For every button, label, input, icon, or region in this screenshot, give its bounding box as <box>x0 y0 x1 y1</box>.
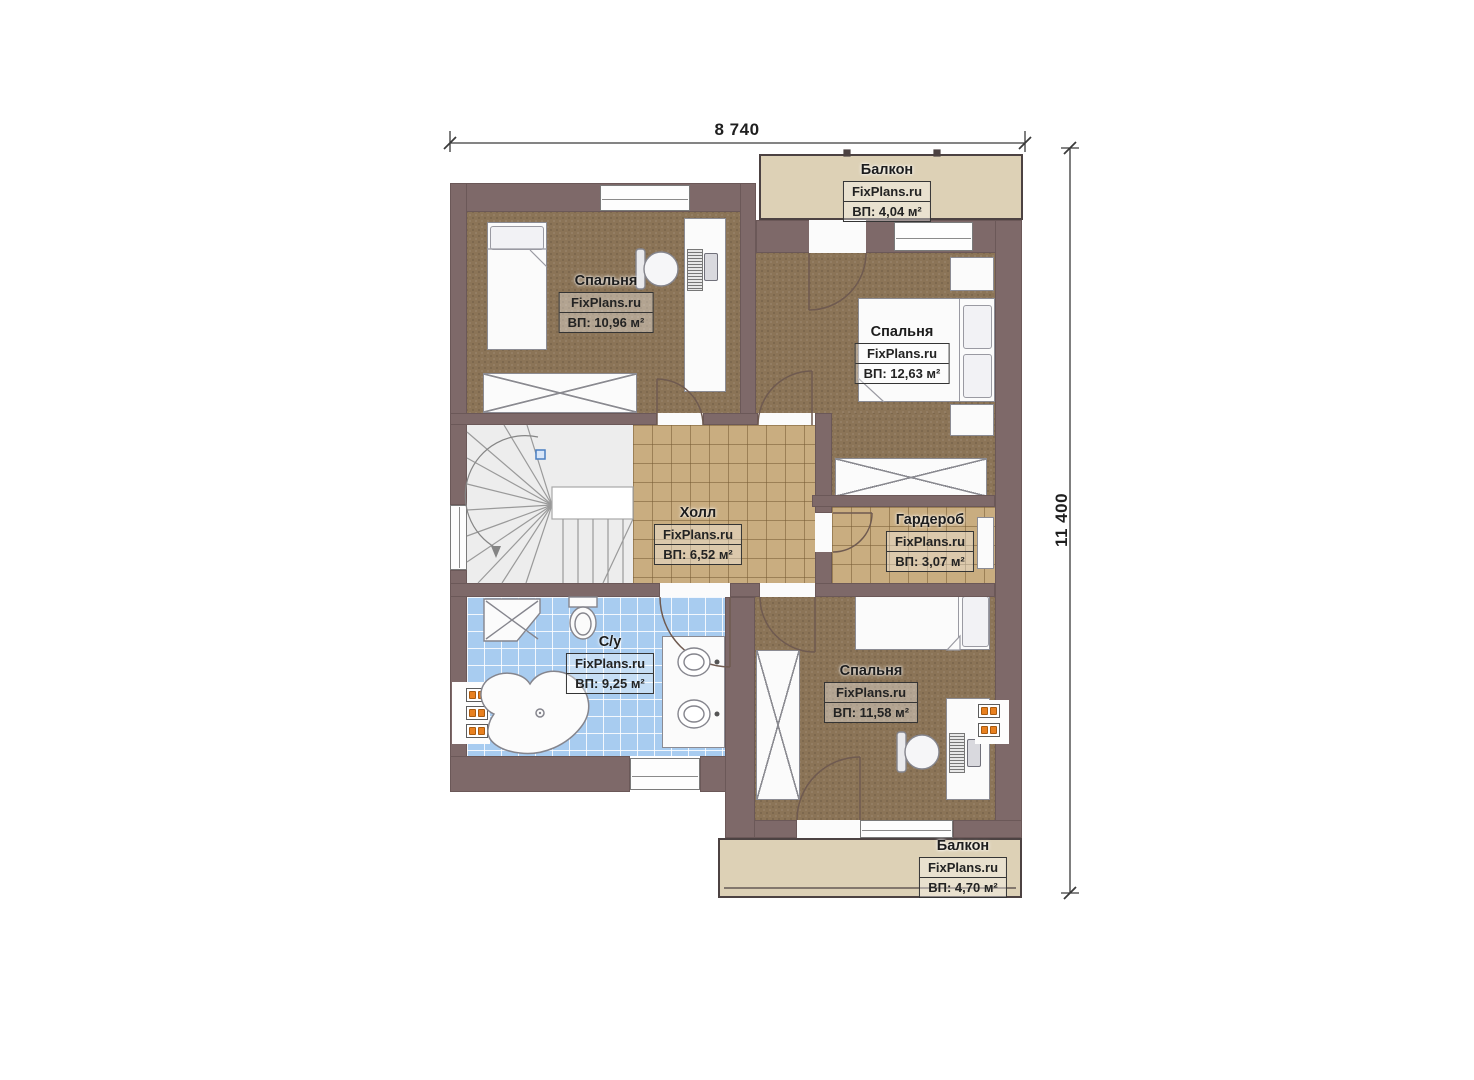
room-area: ВП: 3,07 м² <box>887 551 973 571</box>
wall <box>725 597 755 838</box>
monitor-icon <box>704 253 718 281</box>
window <box>600 185 690 211</box>
wall <box>740 183 756 425</box>
radiator-icon <box>466 688 488 702</box>
brand-watermark: FixPlans.ru <box>560 293 653 312</box>
room-label-bedroom-bottom: Спальня FixPlans.ru ВП: 11,58 м² <box>824 663 918 723</box>
floor-plan: Балкон FixPlans.ru ВП: 4,04 м² Спальня F… <box>0 0 1474 1080</box>
radiator-icon <box>466 724 488 738</box>
wardrobe-cabinet <box>483 373 637 413</box>
pc-tower-icon <box>687 249 703 291</box>
room-area: ВП: 6,52 м² <box>655 544 741 564</box>
radiator-icon <box>466 706 488 720</box>
room-info-box: FixPlans.ru ВП: 10,96 м² <box>559 292 654 333</box>
door-opening <box>809 220 866 253</box>
wall <box>703 413 758 425</box>
nightstand <box>950 257 994 291</box>
room-name: Холл <box>654 505 742 521</box>
brand-watermark: FixPlans.ru <box>887 532 973 551</box>
wardrobe-cabinet <box>756 650 800 800</box>
wall <box>995 220 1022 838</box>
room-info-box: FixPlans.ru ВП: 3,07 м² <box>886 531 974 572</box>
room-label-bathroom: С/у FixPlans.ru ВП: 9,25 м² <box>566 634 654 694</box>
brand-watermark: FixPlans.ru <box>567 654 653 673</box>
door-opening <box>657 413 703 425</box>
wall <box>730 583 760 597</box>
window <box>630 758 700 790</box>
radiator-icon <box>978 704 1000 718</box>
door-opening <box>758 413 812 425</box>
wall <box>450 413 657 425</box>
room-info-box: FixPlans.ru ВП: 6,52 м² <box>654 524 742 565</box>
wall <box>450 583 660 597</box>
pillow <box>963 354 992 398</box>
dimension-width-label: 8 740 <box>714 120 759 140</box>
room-name: Гардероб <box>886 512 974 528</box>
pc-tower-icon <box>949 733 965 773</box>
window <box>894 222 973 251</box>
room-label-wardrobe: Гардероб FixPlans.ru ВП: 3,07 м² <box>886 512 974 572</box>
room-name: Спальня <box>559 273 654 289</box>
room-label-bedroom-top-left: Спальня FixPlans.ru ВП: 10,96 м² <box>559 273 654 333</box>
pillow <box>490 226 544 250</box>
room-area: ВП: 9,25 м² <box>567 673 653 693</box>
room-area: ВП: 4,70 м² <box>920 877 1006 897</box>
room-info-box: FixPlans.ru ВП: 12,63 м² <box>855 343 950 384</box>
room-info-box: FixPlans.ru ВП: 9,25 м² <box>566 653 654 694</box>
window <box>860 820 953 838</box>
wall <box>815 583 995 597</box>
room-name: Балкон <box>843 162 931 178</box>
pillow <box>962 596 989 647</box>
pillow <box>963 305 992 349</box>
room-name: Спальня <box>855 324 950 340</box>
wall <box>756 220 1022 253</box>
door-opening <box>815 513 832 552</box>
room-label-balcony-top: Балкон FixPlans.ru ВП: 4,04 м² <box>843 162 931 222</box>
wardrobe-cabinet <box>835 458 987 497</box>
room-label-hall: Холл FixPlans.ru ВП: 6,52 м² <box>654 505 742 565</box>
bed-single <box>487 222 547 350</box>
nightstand <box>950 404 994 436</box>
room-area: ВП: 11,58 м² <box>825 702 917 722</box>
door-opening <box>797 820 860 838</box>
sink-counter <box>662 636 725 748</box>
dresser <box>977 517 994 569</box>
room-label-bedroom-top-right: Спальня FixPlans.ru ВП: 12,63 м² <box>855 324 950 384</box>
room-name: С/у <box>566 634 654 650</box>
room-area: ВП: 10,96 м² <box>560 312 653 332</box>
bed-divider <box>959 299 960 401</box>
dimension-height-label: 11 400 <box>1052 493 1072 547</box>
room-name: Балкон <box>919 838 1007 854</box>
room-area: ВП: 12,63 м² <box>856 363 949 383</box>
brand-watermark: FixPlans.ru <box>655 525 741 544</box>
bed-divider <box>958 593 959 649</box>
room-area: ВП: 4,04 м² <box>844 201 930 221</box>
room-info-box: FixPlans.ru ВП: 11,58 м² <box>824 682 918 723</box>
brand-watermark: FixPlans.ru <box>856 344 949 363</box>
room-info-box: FixPlans.ru ВП: 4,70 м² <box>919 857 1007 898</box>
wall <box>450 756 630 792</box>
room-info-box: FixPlans.ru ВП: 4,04 м² <box>843 181 931 222</box>
stairwell-floor <box>467 425 633 583</box>
wall <box>812 495 995 507</box>
brand-watermark: FixPlans.ru <box>825 683 917 702</box>
door-opening <box>760 583 815 597</box>
radiator-icon <box>978 723 1000 737</box>
brand-watermark: FixPlans.ru <box>920 858 1006 877</box>
door-opening <box>660 583 730 597</box>
bed-single <box>855 592 990 650</box>
brand-watermark: FixPlans.ru <box>844 182 930 201</box>
window <box>450 505 467 570</box>
room-name: Спальня <box>824 663 918 679</box>
wall <box>953 820 1022 838</box>
desk <box>684 218 726 392</box>
wall <box>450 183 467 505</box>
room-label-balcony-bottom: Балкон FixPlans.ru ВП: 4,70 м² <box>919 838 1007 898</box>
